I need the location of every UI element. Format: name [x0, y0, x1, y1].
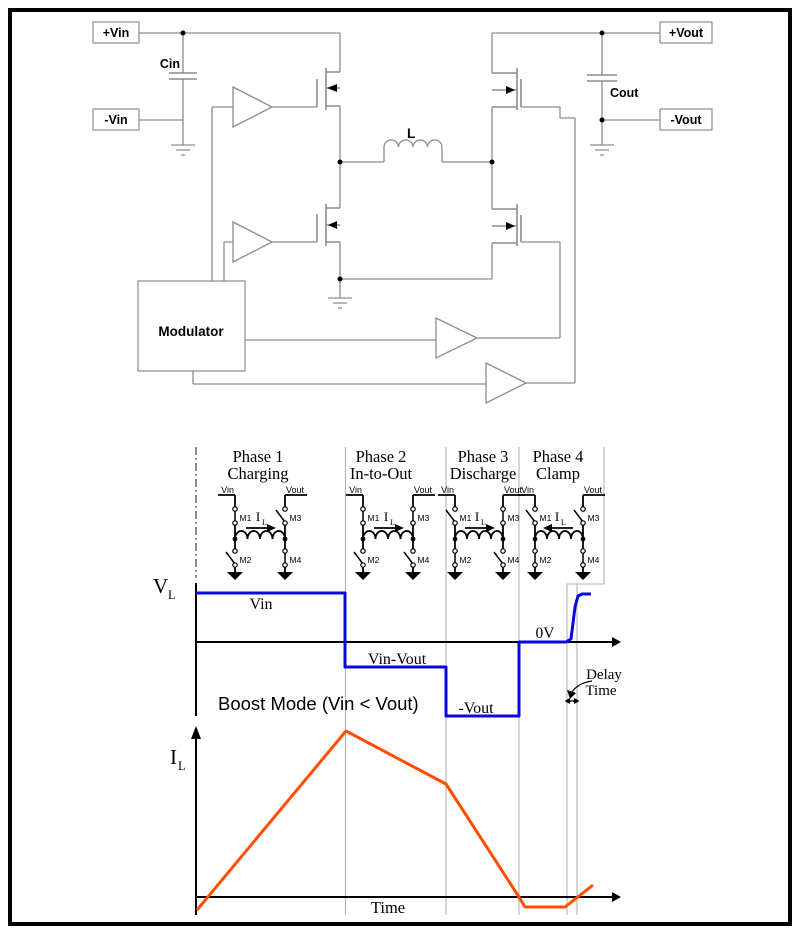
delay-pointer-arrowhead-icon: [567, 690, 576, 699]
junction-dot: [338, 277, 343, 282]
il-plot: I L Time: [170, 726, 621, 917]
current-sub: L: [262, 518, 267, 527]
switch-blade-open: [446, 510, 455, 522]
ground-symbol: [495, 572, 511, 580]
phase-subtitle: Charging: [227, 464, 288, 483]
vl-axis-label-sub: L: [168, 588, 176, 602]
vl-time-axis-arrowhead-icon: [612, 637, 621, 647]
switch-label: M2: [460, 555, 472, 565]
switch-terminal: [453, 549, 457, 553]
phase-vin-label: Vin: [441, 485, 454, 495]
phase-vin-label: Vin: [221, 485, 234, 495]
gate-driver-2: [233, 222, 272, 262]
switch-terminal: [453, 563, 457, 567]
il-axis-label-sub: L: [178, 759, 186, 773]
switch-label: M4: [588, 555, 600, 565]
switch-label: M3: [508, 513, 520, 523]
cin-label: Cin: [160, 57, 180, 71]
switch-terminal: [233, 549, 237, 553]
switch-terminal: [533, 549, 537, 553]
phase-vout-label: Vout: [414, 485, 433, 495]
cout-label: Cout: [610, 86, 639, 100]
switch-blade-open: [526, 510, 535, 522]
mosfet-top-left: [317, 68, 340, 110]
switch-terminal: [233, 521, 237, 525]
ground-symbol: [277, 572, 293, 580]
switch-terminal: [283, 507, 287, 511]
body-diode-arrow-icon: [506, 86, 515, 94]
inductor-coil: [455, 531, 503, 539]
figure-page: L: [0, 0, 800, 934]
mosfet-top-right: [492, 68, 521, 110]
switch-terminal: [411, 521, 415, 525]
switch-terminal: [453, 521, 457, 525]
switch-blade-open: [276, 510, 285, 522]
switch-terminal: [581, 507, 585, 511]
capacitor-plates: [169, 73, 617, 81]
vl-level-vin-minus-vout: Vin-Vout: [368, 651, 427, 668]
switch-terminal: [501, 549, 505, 553]
phase-subtitle: Discharge: [450, 464, 517, 483]
phase-subtitle: In-to-Out: [350, 464, 413, 483]
switch-terminal: [283, 521, 287, 525]
current-arrowhead-icon: [486, 524, 495, 532]
phase-subtitle: Clamp: [536, 464, 580, 483]
gate-driver-3: [436, 318, 477, 358]
delay-time-annotation: Delay Time: [565, 667, 623, 704]
phase-vout-label: Vout: [286, 485, 305, 495]
current-label: I: [256, 509, 260, 524]
switch-label: M1: [368, 513, 380, 523]
switch-terminal: [581, 549, 585, 553]
gate-driver-1: [233, 87, 272, 127]
ground-symbol: [405, 572, 421, 580]
inductor-coil: [384, 140, 442, 162]
body-diode-arrow-icon: [506, 222, 515, 230]
ground-symbol: [575, 572, 591, 580]
modulator-label: Modulator: [158, 324, 224, 339]
switch-terminal: [361, 507, 365, 511]
inductor-coil: [363, 531, 413, 539]
inductor-coil: [235, 531, 285, 539]
switch-terminal: [361, 521, 365, 525]
vin-neg-label: -Vin: [104, 113, 127, 127]
switch-terminal: [501, 507, 505, 511]
mosfet-bottom-left: [317, 204, 340, 246]
phase-diagram-1: Phase 1ChargingVinVoutM1M2M3M4IL: [218, 447, 307, 580]
ground-symbol: [447, 572, 463, 580]
inductor-label: L: [407, 126, 415, 141]
il-trace: [197, 731, 593, 910]
phase-diagram-2: Phase 2In-to-OutVinVoutM1M2M3M4IL: [346, 447, 435, 580]
vl-axis-label: V: [153, 574, 168, 598]
phase-vout-label: Vout: [504, 485, 523, 495]
switch-terminal: [283, 549, 287, 553]
phase-vin-label: Vin: [349, 485, 362, 495]
switch-label: M4: [290, 555, 302, 565]
switch-label: M3: [418, 513, 430, 523]
junction-dot: [600, 118, 605, 123]
current-arrowhead-icon: [267, 524, 276, 532]
current-sub: L: [561, 518, 566, 527]
phase-diagrams: Phase 1ChargingVinVoutM1M2M3M4ILPhase 2I…: [218, 447, 605, 580]
junction-dot: [338, 160, 343, 165]
boost-mode-caption: Boost Mode (Vin < Vout): [218, 693, 419, 714]
switch-terminal: [533, 507, 537, 511]
current-label: I: [475, 509, 479, 524]
switch-terminal: [533, 563, 537, 567]
switch-terminal: [453, 507, 457, 511]
switch-terminal: [533, 521, 537, 525]
switch-label: M1: [540, 513, 552, 523]
switch-terminal: [361, 549, 365, 553]
buck-boost-figure: L: [0, 0, 800, 934]
switch-label: M2: [540, 555, 552, 565]
current-arrowhead-icon: [543, 524, 552, 532]
vout-pos-label: +Vout: [669, 26, 704, 40]
junction-dot: [600, 31, 605, 36]
current-sub: L: [390, 518, 395, 527]
vl-level-zero: 0V: [536, 625, 556, 642]
junction-dot: [490, 160, 495, 165]
schematic: L: [93, 22, 712, 403]
switch-label: M4: [508, 555, 520, 565]
current-sub: L: [481, 518, 486, 527]
vl-level-neg-vout: -Vout: [458, 700, 494, 717]
switch-label: M3: [290, 513, 302, 523]
switch-terminal: [411, 507, 415, 511]
switch-label: M2: [240, 555, 252, 565]
switch-blade-open: [494, 552, 503, 564]
switch-blade-open: [226, 552, 235, 564]
switch-terminal: [411, 549, 415, 553]
ground-symbol: [527, 572, 543, 580]
phase-vin-label: Vin: [521, 485, 534, 495]
switch-blade-open: [574, 510, 583, 522]
current-label: I: [555, 509, 559, 524]
switch-blade-open: [404, 552, 413, 564]
il-y-axis-arrowhead-icon: [191, 726, 201, 739]
junction-dot: [181, 31, 186, 36]
vl-level-vin: Vin: [249, 596, 272, 613]
switch-label: M2: [368, 555, 380, 565]
body-diode-arrow-icon: [328, 221, 337, 229]
switch-terminal: [501, 521, 505, 525]
body-diode-arrow-icon: [327, 84, 337, 92]
switch-terminal: [233, 507, 237, 511]
ground-symbol: [227, 572, 243, 580]
mosfet-bottom-right: [492, 204, 521, 246]
switch-terminal: [581, 563, 585, 567]
switch-terminal: [411, 563, 415, 567]
switch-blade-open: [354, 552, 363, 564]
il-axis-label: I: [170, 745, 177, 769]
switch-terminal: [581, 521, 585, 525]
time-axis-label: Time: [371, 898, 405, 917]
il-time-axis-arrowhead-icon: [612, 892, 621, 902]
switch-label: M1: [240, 513, 252, 523]
phase-diagram-4: Phase 4ClampVinVoutM1M2M3M4IL: [518, 447, 605, 580]
vout-neg-label: -Vout: [670, 113, 702, 127]
current-label: I: [384, 509, 388, 524]
switch-label: M4: [418, 555, 430, 565]
switch-label: M3: [588, 513, 600, 523]
switch-terminal: [361, 563, 365, 567]
current-arrowhead-icon: [395, 524, 404, 532]
gate-driver-4: [486, 363, 526, 403]
inductor-coil: [535, 531, 583, 539]
ground-symbol: [355, 572, 371, 580]
switch-terminal: [233, 563, 237, 567]
vl-plot: V L Vin Vin-Vout -Vout 0V Boost Mode (Vi…: [153, 574, 622, 717]
phase-vout-label: Vout: [584, 485, 603, 495]
delay-word2: Time: [585, 683, 616, 699]
switch-terminal: [501, 563, 505, 567]
vin-pos-label: +Vin: [103, 26, 130, 40]
phase-diagram-3: Phase 3DischargeVinVoutM1M2M3M4IL: [438, 447, 525, 580]
switch-label: M1: [460, 513, 472, 523]
switch-terminal: [283, 563, 287, 567]
